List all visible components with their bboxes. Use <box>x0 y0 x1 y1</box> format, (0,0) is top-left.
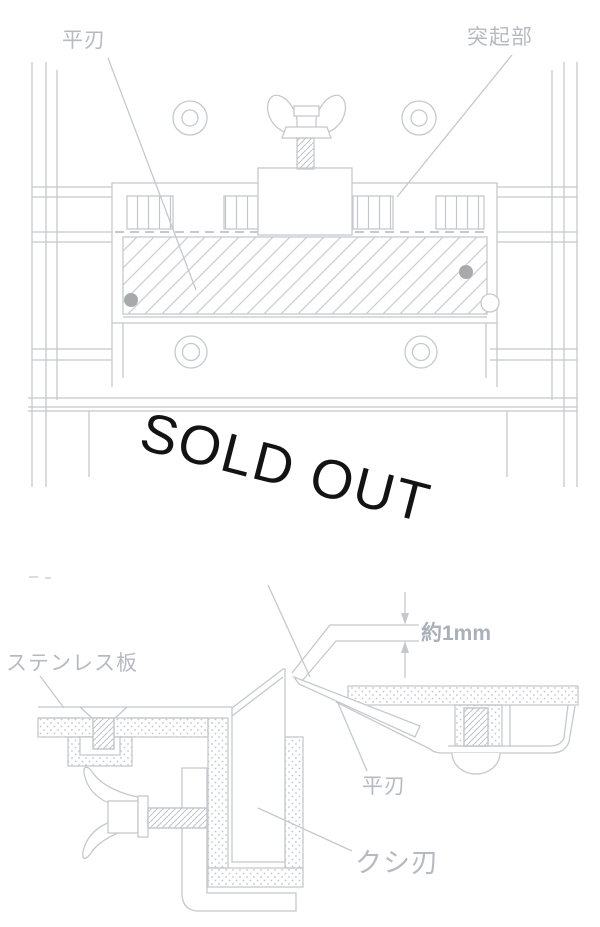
stray-marks <box>29 577 51 578</box>
left-frame <box>32 62 112 487</box>
label-protrusion: 突起部 <box>467 26 533 49</box>
label-dimension-1mm: 約1mm <box>421 621 491 645</box>
leader-cropped-label <box>268 585 310 677</box>
comb-blade <box>232 669 285 862</box>
label-flat-blade-bottom: 平刃 <box>362 775 406 798</box>
flat-blade-section <box>123 237 499 317</box>
tray-screw <box>464 708 488 746</box>
bottom-diagram <box>29 577 578 911</box>
pin-dot-left <box>124 293 138 307</box>
stainless-plate <box>38 707 232 766</box>
tray-bump <box>452 753 500 774</box>
dimension-1mm <box>292 592 419 681</box>
countersunk-screw <box>93 718 114 749</box>
label-flat-blade-top: 平刃 <box>62 29 106 52</box>
right-frame <box>490 62 577 487</box>
product-image: 平刃 突起部 <box>0 0 600 927</box>
label-comb-blade: クシ刃 <box>355 848 439 878</box>
leader-protrusion <box>397 55 512 197</box>
leader-stainless-plate <box>40 676 64 708</box>
clamp-screw-thread <box>148 808 207 828</box>
screw-hole-left <box>173 101 207 135</box>
top-diagram <box>28 55 577 487</box>
pin-dot-right <box>459 265 473 279</box>
label-stainless-plate: ステンレス板 <box>6 652 138 675</box>
wing-nut-icon <box>268 95 346 169</box>
tray-section <box>294 677 578 774</box>
lower-panel <box>112 323 497 387</box>
screw-hole-right <box>402 101 436 135</box>
edge-notch <box>481 294 499 312</box>
